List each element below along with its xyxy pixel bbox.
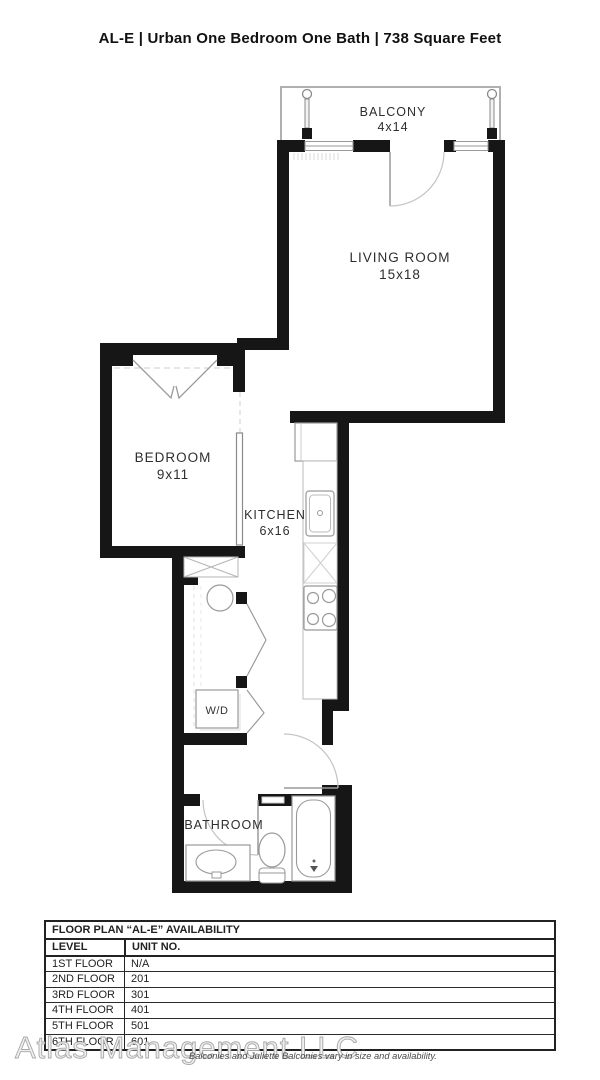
kitchen-label: KITCHEN xyxy=(244,508,306,522)
sink-icon xyxy=(306,491,334,536)
kitchen-dims: 6x16 xyxy=(259,524,290,538)
bathroom: BATHROOM xyxy=(184,796,335,883)
balcony-label: BALCONY xyxy=(360,105,427,119)
washer-dryer-label: W/D xyxy=(206,705,229,717)
bifold-door xyxy=(247,690,264,733)
balcony-post-right xyxy=(487,90,497,140)
balcony-post-left xyxy=(302,90,312,140)
level-cell: 1ST FLOOR xyxy=(46,957,125,972)
bathtub-icon xyxy=(292,796,335,881)
living-room-label: LIVING ROOM xyxy=(349,250,450,265)
window-sill-hatch xyxy=(294,153,338,160)
unit-cell: 201 xyxy=(125,972,554,987)
bedroom-label: BEDROOM xyxy=(135,450,212,465)
toilet-icon xyxy=(259,833,285,883)
bathroom-shelf xyxy=(262,797,284,803)
level-cell: 3RD FLOOR xyxy=(46,988,125,1003)
closet-icon xyxy=(184,557,238,577)
bathroom-label: BATHROOM xyxy=(184,818,263,832)
availability-table-header: LEVEL UNIT NO. xyxy=(46,940,554,957)
bifold-door xyxy=(247,604,266,676)
washer-dryer-icon: W/D xyxy=(196,690,240,730)
living-room-dims: 15x18 xyxy=(379,267,421,282)
column-header-level: LEVEL xyxy=(46,940,126,955)
balcony: BALCONY 4x14 xyxy=(281,87,500,140)
french-doors xyxy=(133,360,217,398)
water-heater-icon xyxy=(207,585,233,611)
bedroom-dims: 9x11 xyxy=(157,467,189,482)
table-row: 4TH FLOOR 401 xyxy=(46,1003,554,1019)
bedroom: BEDROOM 9x11 xyxy=(114,360,243,545)
sliding-door-panel xyxy=(237,433,243,545)
balcony-disclaimer-note: Balconies and Juliette Balconies vary in… xyxy=(189,1051,437,1061)
unit-cell: 401 xyxy=(125,1003,554,1018)
stove-icon xyxy=(304,586,337,630)
table-row: 3RD FLOOR 301 xyxy=(46,988,554,1004)
level-cell: 2ND FLOOR xyxy=(46,972,125,987)
table-row: 2ND FLOOR 201 xyxy=(46,972,554,988)
column-header-unit: UNIT NO. xyxy=(126,940,554,955)
unit-cell: N/A xyxy=(125,957,554,972)
vanity-sink-icon xyxy=(186,845,250,881)
unit-cell: 301 xyxy=(125,988,554,1003)
living-room: LIVING ROOM 15x18 xyxy=(294,142,488,283)
availability-table-title: FLOOR PLAN “AL-E” AVAILABILITY xyxy=(46,922,554,940)
table-row: 1ST FLOOR N/A xyxy=(46,957,554,973)
floor-plan: BALCONY 4x14 xyxy=(0,0,600,1080)
kitchen: KITCHEN 6x16 xyxy=(244,423,337,699)
balcony-dims: 4x14 xyxy=(377,120,408,134)
window xyxy=(454,142,488,151)
balcony-door xyxy=(390,152,444,206)
level-cell: 4TH FLOOR xyxy=(46,1003,125,1018)
fridge-icon xyxy=(295,423,337,461)
